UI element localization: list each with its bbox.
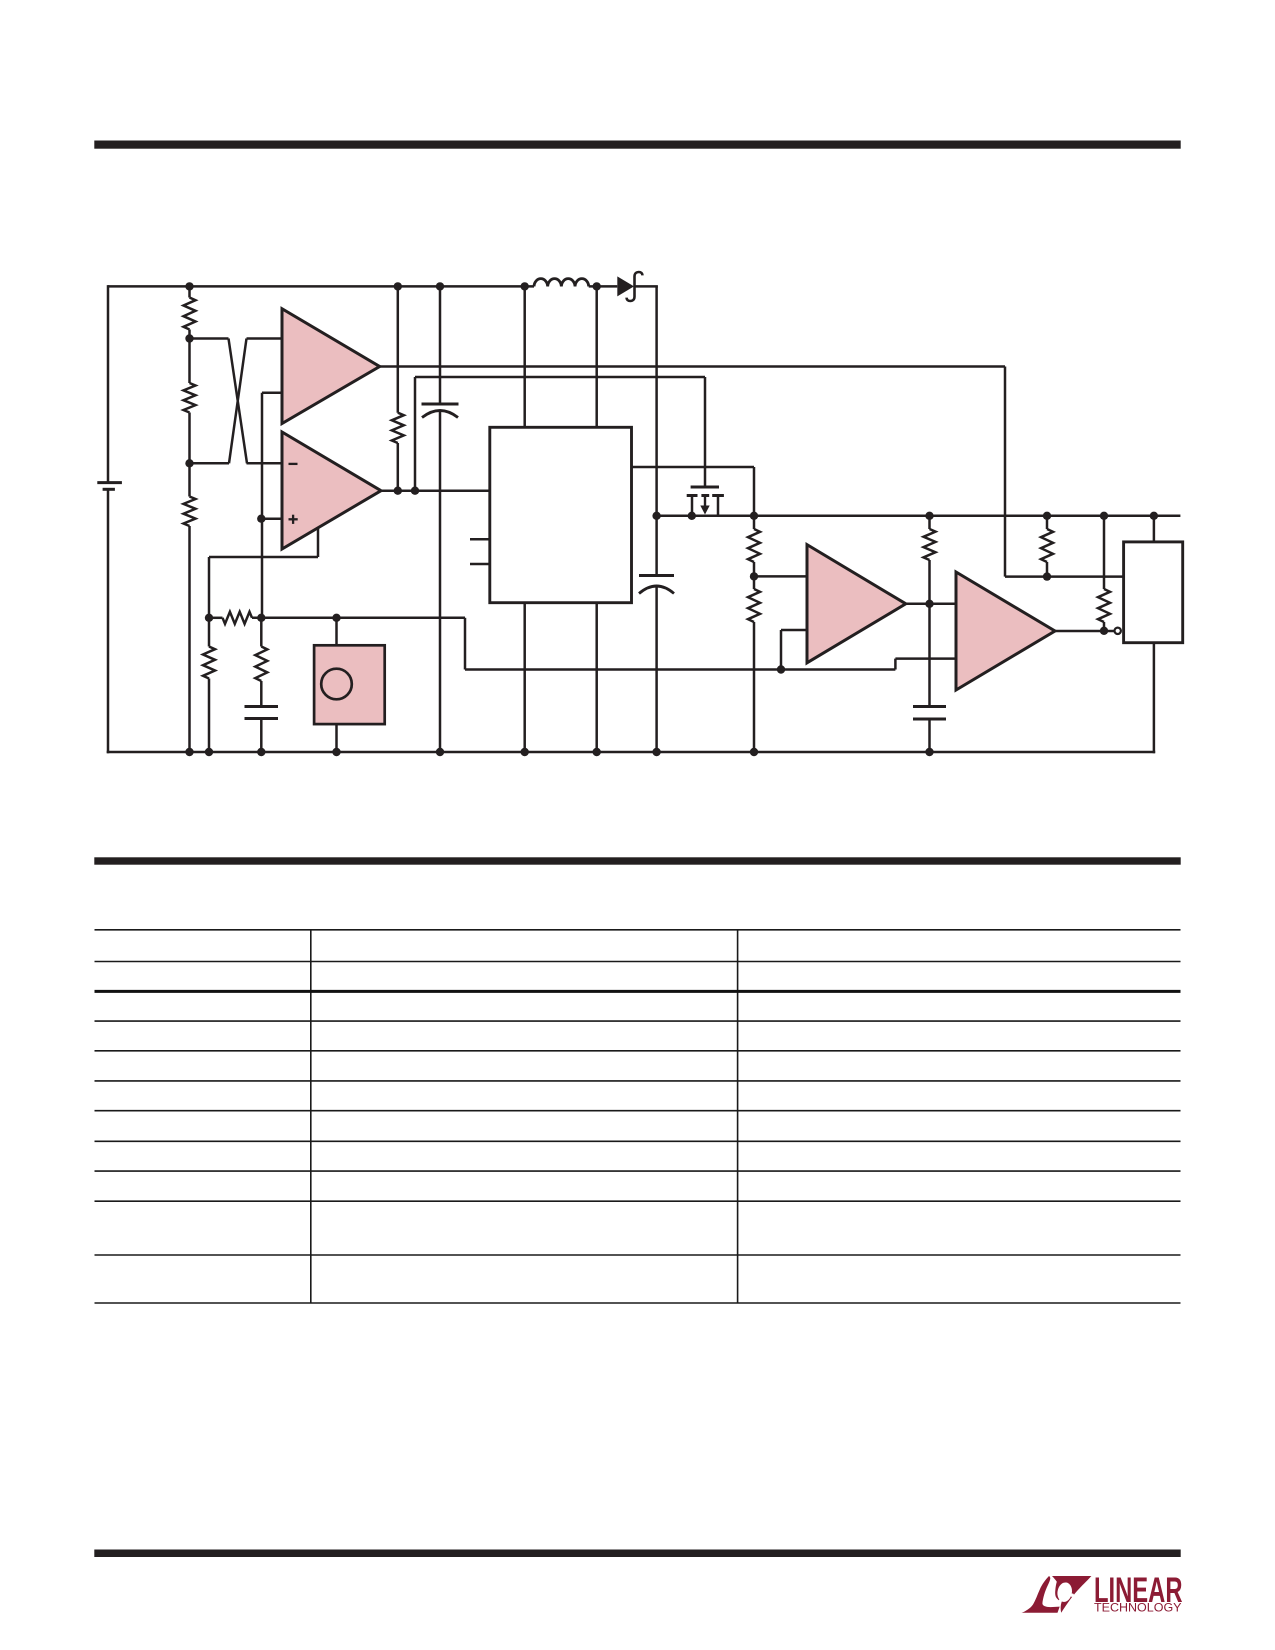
svg-text:TECHNOLOGY: TECHNOLOGY xyxy=(1094,1601,1182,1615)
